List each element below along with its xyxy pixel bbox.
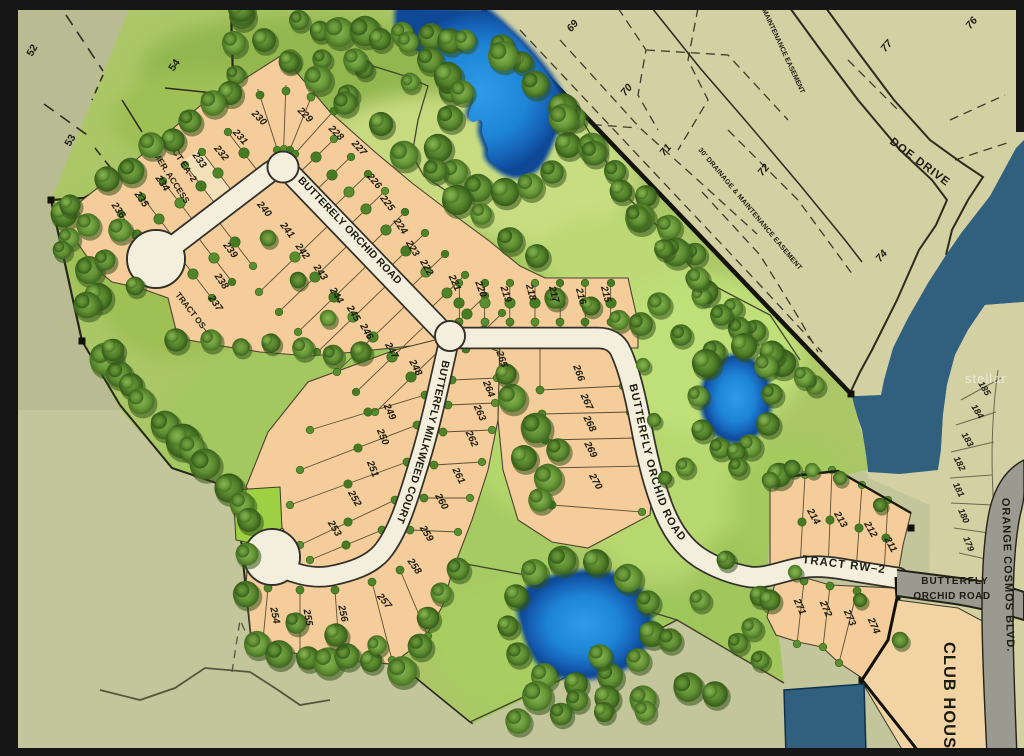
svg-text:stellar: stellar bbox=[965, 371, 1007, 386]
svg-text:ORCHID ROAD: ORCHID ROAD bbox=[913, 591, 990, 602]
svg-text:BUTTERFLY: BUTTERFLY bbox=[921, 576, 989, 587]
svg-text:CLUB HOUSE: CLUB HOUSE bbox=[940, 642, 958, 756]
